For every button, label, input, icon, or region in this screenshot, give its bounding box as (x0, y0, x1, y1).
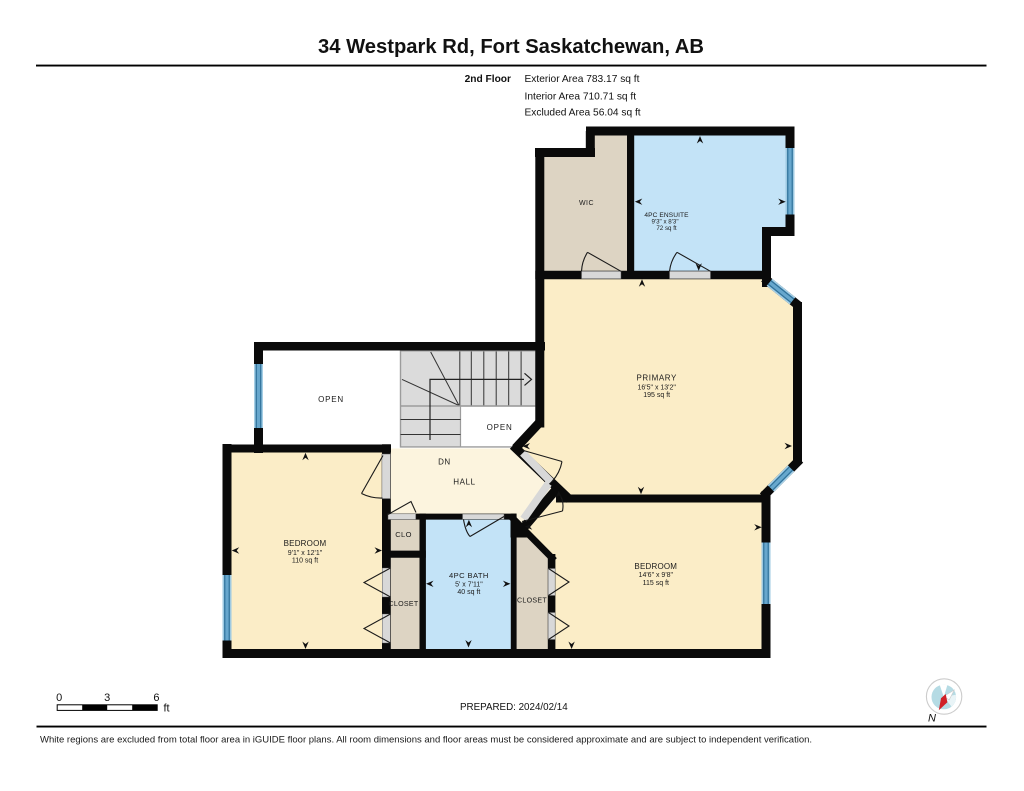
svg-text:16'5" x 13'2": 16'5" x 13'2" (638, 384, 677, 391)
svg-text:OPEN: OPEN (318, 395, 344, 404)
svg-text:3: 3 (104, 692, 110, 704)
svg-text:0: 0 (56, 692, 62, 704)
svg-text:Interior Area 710.71 sq ft: Interior Area 710.71 sq ft (525, 91, 637, 102)
svg-text:PREPARED: 2024/02/14: PREPARED: 2024/02/14 (460, 702, 568, 713)
svg-text:CLO: CLO (395, 530, 412, 539)
svg-text:115 sq ft: 115 sq ft (643, 580, 669, 587)
svg-text:6: 6 (153, 692, 159, 704)
svg-text:CLOSET: CLOSET (389, 600, 419, 608)
svg-text:N: N (928, 713, 936, 725)
svg-text:CLOSET: CLOSET (517, 597, 547, 605)
svg-text:BEDROOM: BEDROOM (634, 562, 677, 571)
svg-text:DN: DN (438, 458, 451, 467)
svg-text:34 Westpark Rd, Fort Saskatche: 34 Westpark Rd, Fort Saskatchewan, AB (318, 36, 704, 58)
svg-text:PRIMARY: PRIMARY (636, 374, 677, 383)
svg-text:4PC BATH: 4PC BATH (449, 571, 489, 580)
svg-text:110 sq ft: 110 sq ft (292, 557, 318, 564)
svg-text:OPEN: OPEN (487, 423, 513, 432)
svg-text:HALL: HALL (453, 477, 475, 486)
svg-text:9'1" x 12'1": 9'1" x 12'1" (288, 550, 323, 557)
svg-text:72 sq ft: 72 sq ft (656, 225, 677, 232)
svg-text:BEDROOM: BEDROOM (284, 539, 327, 548)
svg-text:Exterior Area 783.17 sq ft: Exterior Area 783.17 sq ft (525, 74, 640, 85)
svg-text:ft: ft (164, 703, 170, 715)
svg-text:40 sq ft: 40 sq ft (457, 589, 480, 596)
svg-text:14'6" x 9'8": 14'6" x 9'8" (639, 572, 674, 579)
svg-text:White regions are excluded fro: White regions are excluded from total fl… (40, 734, 812, 745)
svg-text:2nd Floor: 2nd Floor (465, 74, 511, 85)
svg-text:WIC: WIC (579, 200, 594, 207)
svg-text:Excluded Area 56.04 sq ft: Excluded Area 56.04 sq ft (525, 107, 641, 118)
svg-text:5' x 7'11": 5' x 7'11" (455, 581, 483, 588)
svg-text:195 sq ft: 195 sq ft (643, 392, 670, 399)
